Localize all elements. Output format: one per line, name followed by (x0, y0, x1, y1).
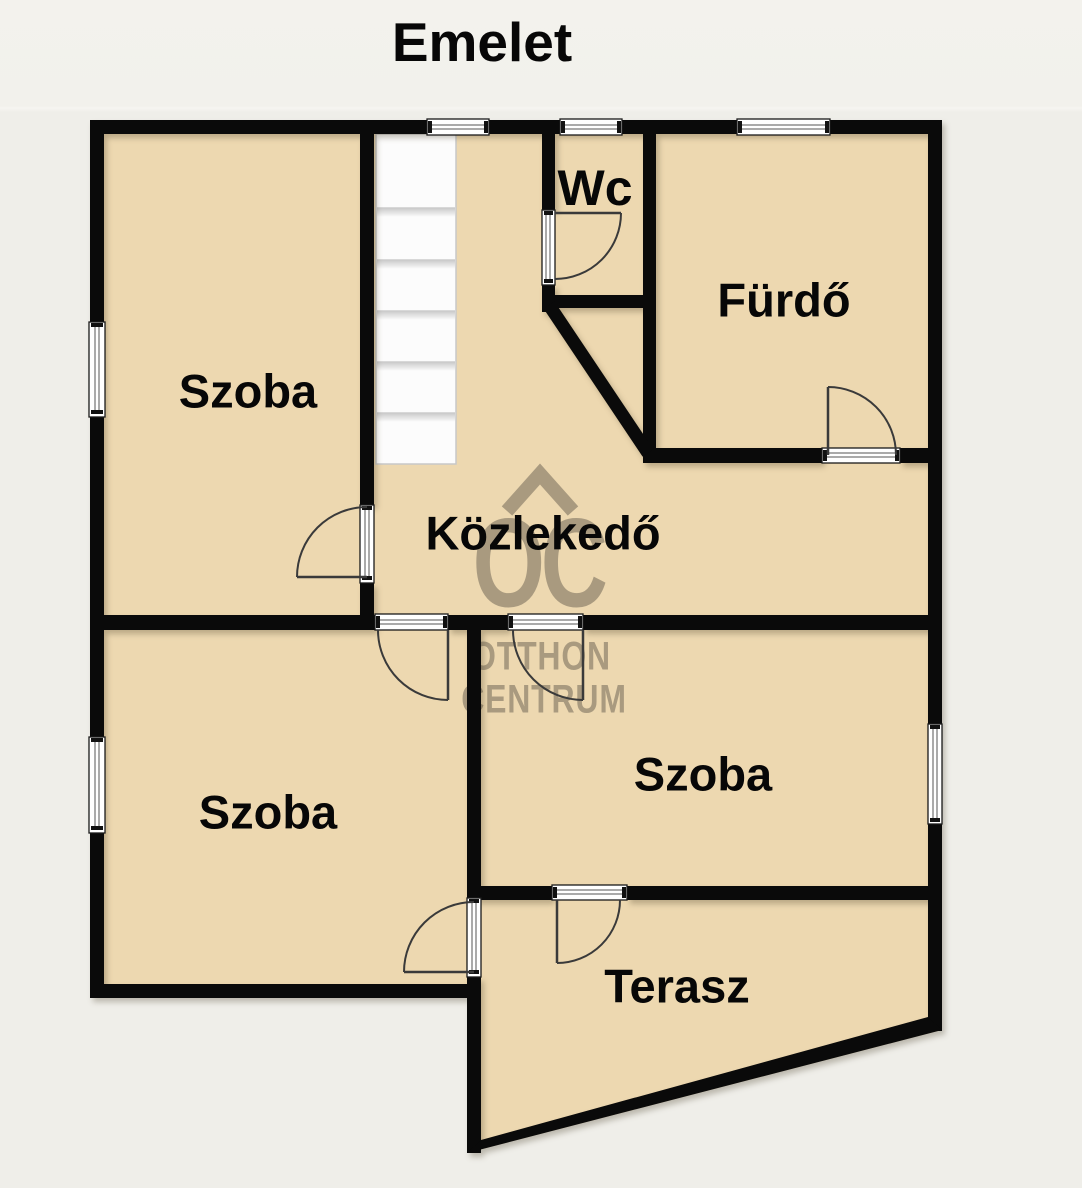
wall-outer-left (90, 120, 104, 998)
window-top-wc (560, 119, 622, 135)
door-threshold-terrace-room (467, 898, 481, 977)
wall-wc-bottom (542, 295, 656, 308)
wall-stair-lower (360, 583, 374, 630)
wall-mid-right (583, 615, 928, 630)
door-top-left-room (297, 507, 367, 577)
door-threshold-bathroom (822, 448, 900, 463)
watermark-line2: CENTRUM (461, 678, 627, 723)
wall-right-room-bottom-left (467, 886, 552, 900)
door-threshold-top-left-room (360, 505, 374, 583)
wall-wc-right (643, 134, 656, 463)
window-top-bathroom (737, 119, 830, 135)
wall-terrace-slant (467, 1017, 942, 1153)
room-label-bottom-left: Szoba (199, 785, 337, 840)
room-label-wc: Wc (558, 159, 633, 217)
watermark-line1: OTTHON (471, 635, 611, 680)
terrace-door-threshold (552, 885, 627, 900)
page-title: Emelet (392, 10, 572, 74)
staircase-body (376, 134, 456, 464)
room-label-middle-right: Szoba (634, 747, 772, 802)
wall-right-room-bottom-right (627, 886, 928, 900)
wall-terrace-left (467, 977, 481, 1153)
wall-bath-bottom-right (900, 448, 928, 463)
wall-bath-bottom-left (643, 448, 822, 463)
wall-outer-right (928, 120, 942, 1031)
staircase (376, 134, 456, 464)
door-threshold-wc (542, 210, 555, 285)
wall-stair-upper (360, 134, 374, 505)
door-bathroom (828, 387, 896, 455)
room-label-hallway: Közlekedő (425, 506, 660, 561)
wall-diagonal (549, 305, 648, 453)
door-threshold-bottom-left-room (375, 614, 448, 630)
door-bottom-left-room (378, 630, 448, 700)
wall-outer-top (90, 120, 942, 134)
floorplan-canvas: OC OTTHON CENTRUM (0, 0, 1082, 1188)
window-left-bottom-room (89, 737, 105, 833)
wall-wc-left-upper (542, 134, 555, 210)
wall-wc-left-lower (542, 285, 555, 312)
room-label-top-left: Szoba (179, 364, 317, 419)
staircase-treads (377, 208, 455, 422)
door-wc (555, 213, 621, 279)
door-terrace (557, 900, 620, 963)
room-label-bathroom: Fürdő (717, 273, 850, 328)
window-top-stairs (427, 119, 489, 135)
wall-bottom-left-room (90, 984, 481, 998)
window-right-room (928, 724, 942, 824)
door-terrace-to-room (404, 902, 474, 972)
room-label-terrace: Terasz (604, 959, 749, 1014)
wall-mid-left (104, 615, 375, 630)
window-left-top-room (89, 322, 105, 417)
